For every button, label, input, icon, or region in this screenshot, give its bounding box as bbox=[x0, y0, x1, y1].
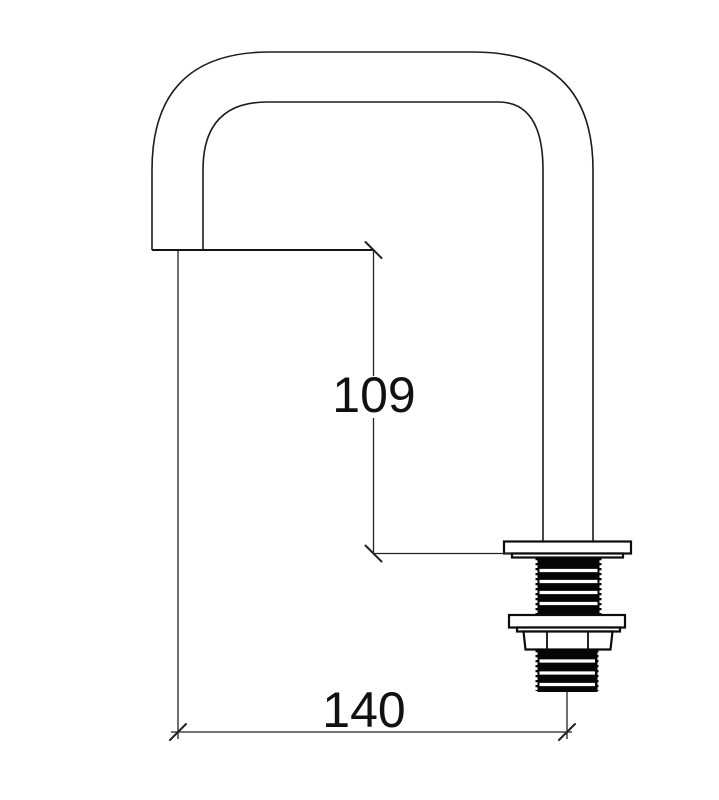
mounting-flange-lip bbox=[512, 554, 623, 558]
reach-dimension: 140 bbox=[170, 251, 575, 740]
hex-nut bbox=[524, 632, 613, 650]
shank-assembly bbox=[504, 542, 631, 692]
washer bbox=[509, 615, 625, 628]
lower-thread-section bbox=[537, 650, 597, 692]
height-dim-label: 109 bbox=[332, 367, 415, 423]
spout-outer-outline bbox=[152, 52, 593, 542]
height-dimension: 109 bbox=[332, 242, 511, 562]
technical-drawing-page: 109 140 bbox=[0, 0, 719, 800]
mounting-flange bbox=[504, 542, 631, 554]
hex-nut-body bbox=[524, 632, 613, 650]
upper-thread-body bbox=[538, 558, 599, 616]
upper-thread-section bbox=[537, 558, 600, 616]
reach-dim-label: 140 bbox=[322, 682, 405, 738]
spout-body bbox=[152, 52, 593, 542]
faucet-spout-drawing: 109 140 bbox=[0, 0, 719, 800]
